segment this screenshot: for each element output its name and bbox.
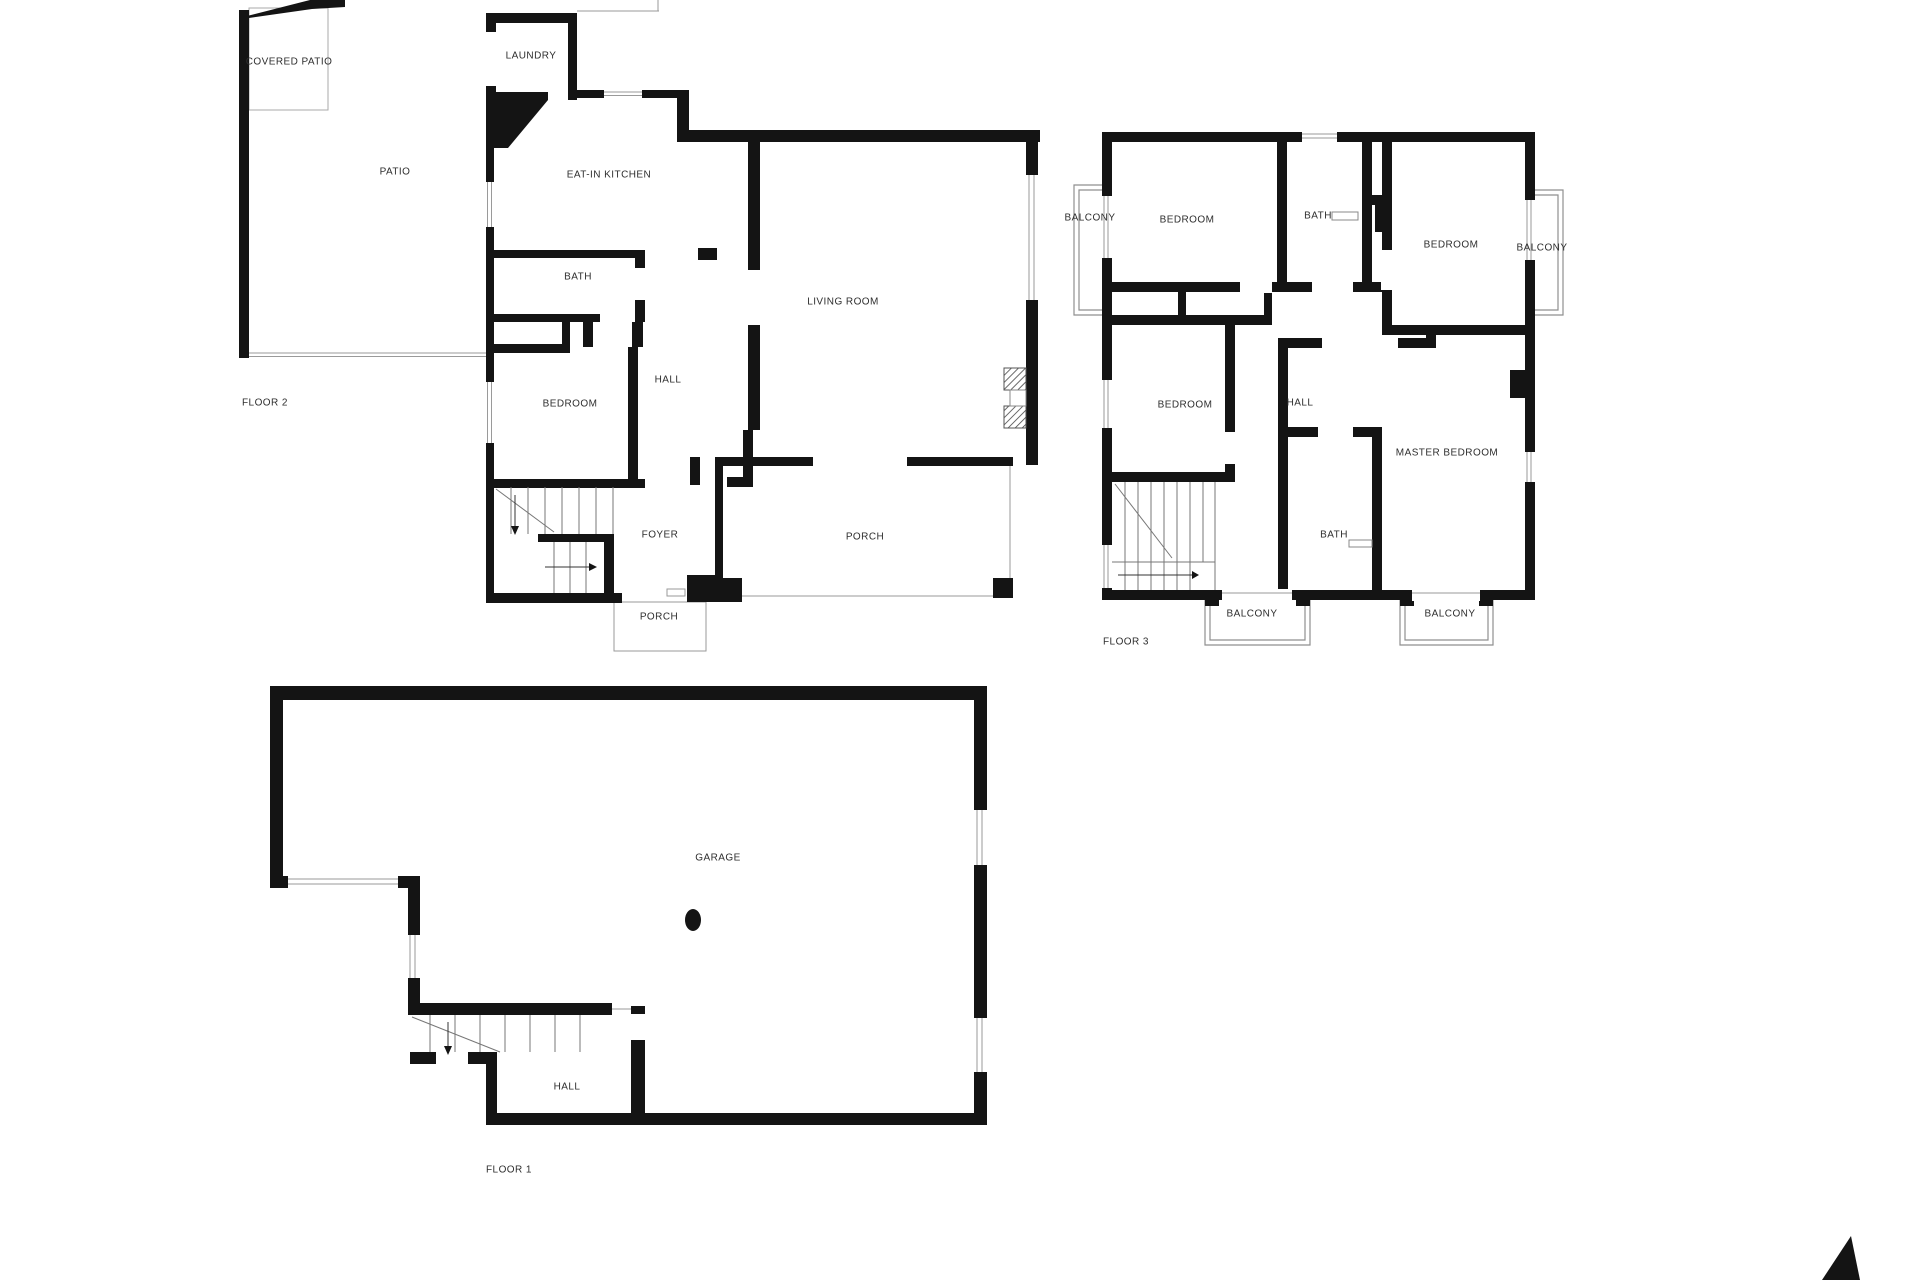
floor1-walls	[270, 686, 987, 1125]
room-label-living-room: LIVING ROOM	[807, 297, 879, 308]
room-label-bedroom-ne: BEDROOM	[1424, 240, 1479, 251]
floor2-plan	[239, 0, 1040, 651]
master-bath-vanity	[1349, 540, 1372, 547]
support-column	[685, 909, 701, 931]
room-label-master-bedroom: MASTER BEDROOM	[1396, 448, 1498, 459]
room-label-hall-f3: HALL	[1287, 398, 1314, 409]
bath-vanity	[1332, 212, 1358, 220]
room-label-garage: GARAGE	[695, 853, 741, 864]
bath-window	[1302, 131, 1337, 143]
entry-porch-outline	[614, 602, 706, 651]
floor3-staircase	[1112, 482, 1215, 590]
kitchen-angled-corner	[486, 92, 548, 148]
room-label-bedroom-f2: BEDROOM	[543, 399, 598, 410]
floor2-title: FLOOR 2	[242, 398, 288, 409]
floor1-plan	[270, 686, 988, 1125]
floor1-openings	[288, 810, 988, 1072]
room-label-balcony-right: BALCONY	[1517, 243, 1568, 254]
fireplace	[1004, 368, 1026, 428]
stair-direction-arrow	[1192, 571, 1199, 579]
room-label-bedroom-nw: BEDROOM	[1160, 215, 1215, 226]
room-label-bedroom-w: BEDROOM	[1158, 400, 1213, 411]
stair-direction-arrow	[589, 563, 597, 571]
hall-door-opening	[630, 1014, 646, 1040]
front-door	[667, 589, 685, 596]
floor3-balcony-railings	[1074, 185, 1563, 645]
patio-angled-wall	[239, 0, 345, 18]
room-label-covered-patio: COVERED PATIO	[246, 57, 333, 68]
bedroom-window	[485, 382, 496, 443]
garage-window-long	[288, 875, 398, 889]
room-label-hall-f2: HALL	[655, 375, 682, 386]
stair-down-arrow	[511, 526, 519, 535]
room-label-bath-top: BATH	[1304, 211, 1332, 222]
room-label-kitchen: EAT-IN KITCHEN	[567, 170, 651, 181]
room-label-patio: PATIO	[380, 167, 411, 178]
floorplan-sheet: COVERED PATIO PATIO LAUNDRY EAT-IN KITCH…	[0, 0, 1920, 1280]
room-label-balcony-se: BALCONY	[1425, 609, 1476, 620]
floorplan-drawing	[0, 0, 1920, 1280]
living-room-window	[1025, 175, 1039, 300]
north-arrow-icon	[1822, 1236, 1860, 1280]
room-label-porch-entry: PORCH	[640, 612, 678, 623]
floor3-plan	[1074, 131, 1563, 645]
floor3-openings	[1101, 131, 1536, 601]
floor3-walls	[1102, 132, 1535, 606]
room-label-balcony-sw: BALCONY	[1227, 609, 1278, 620]
stair-down-arrow	[444, 1046, 452, 1055]
floor1-title: FLOOR 1	[486, 1165, 532, 1176]
room-label-foyer: FOYER	[642, 530, 679, 541]
room-label-porch-front: PORCH	[846, 532, 884, 543]
floor3-title: FLOOR 3	[1103, 637, 1149, 648]
room-label-bath-master: BATH	[1320, 530, 1348, 541]
room-label-laundry: LAUNDRY	[506, 51, 557, 62]
room-label-bath-f2: BATH	[564, 272, 592, 283]
room-label-hall-f1: HALL	[554, 1082, 581, 1093]
kitchen-window	[604, 89, 642, 99]
room-label-balcony-left: BALCONY	[1065, 213, 1116, 224]
floor1-staircase	[412, 1015, 580, 1052]
